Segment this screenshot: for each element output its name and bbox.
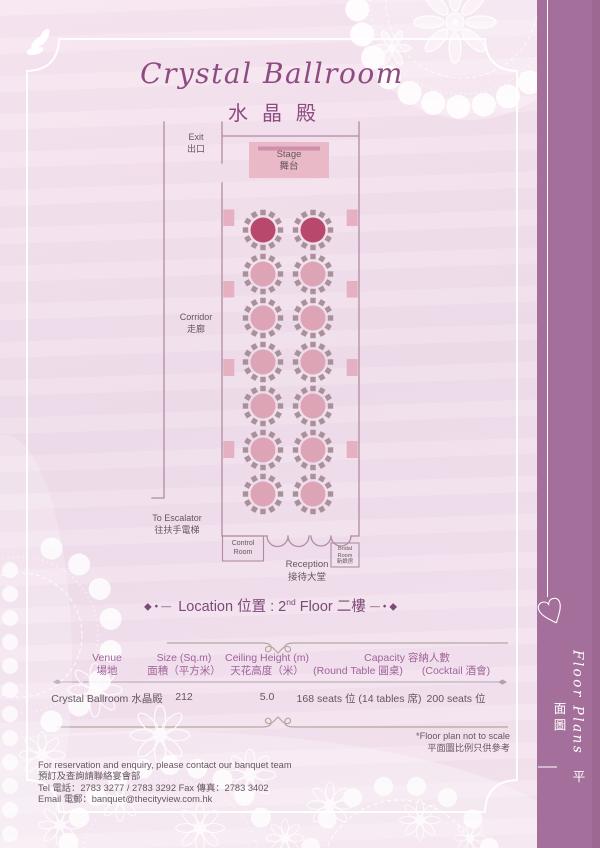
chair-icon — [278, 403, 283, 408]
chair-icon — [310, 298, 315, 303]
door-arcs — [267, 536, 351, 547]
chair-icon — [275, 499, 282, 506]
chair-icon — [325, 367, 332, 374]
chair-icon — [325, 482, 332, 489]
chair-icon — [328, 447, 333, 452]
chair-icon — [293, 271, 298, 276]
chair-icon — [318, 387, 325, 394]
chair-icon — [243, 447, 248, 452]
sidebar-label-en: Floor Plans — [570, 650, 586, 755]
chair-icon — [310, 289, 315, 294]
chair-icon — [275, 262, 282, 269]
location-ornament-left: ◆•— — [144, 602, 174, 613]
chair-icon — [325, 455, 332, 462]
chair-icon — [260, 289, 265, 294]
chair-icon — [328, 315, 333, 320]
corner-petal-icon — [26, 27, 52, 56]
chair-icon — [294, 482, 301, 489]
chair-icon — [301, 255, 308, 262]
chair-icon — [260, 465, 265, 470]
chair-icon — [278, 271, 283, 276]
chair-icon — [318, 418, 325, 425]
chair-icon — [325, 218, 332, 225]
chair-icon — [293, 491, 298, 496]
chair-icon — [275, 218, 282, 225]
chair-icon — [275, 394, 282, 401]
chair-icon — [251, 211, 258, 218]
chair-icon — [275, 350, 282, 357]
chair-icon — [275, 438, 282, 445]
chair-icon — [318, 462, 325, 469]
chair-icon — [294, 350, 301, 357]
chair-icon — [325, 394, 332, 401]
chair-icon — [318, 211, 325, 218]
chair-icon — [318, 475, 325, 482]
chair-icon — [293, 359, 298, 364]
chair-icon — [278, 315, 283, 320]
chair-icon — [318, 299, 325, 306]
chair-icon — [275, 279, 282, 286]
chair-icon — [301, 374, 308, 381]
chair-icon — [251, 475, 258, 482]
round-table — [301, 438, 326, 463]
chair-icon — [301, 418, 308, 425]
stage-label: Stage 舞台 — [250, 149, 328, 173]
chair-icon — [275, 411, 282, 418]
chair-icon — [268, 506, 275, 513]
decor-and-plan-layer — [0, 0, 600, 848]
page-title-chinese: 水晶殿 — [0, 97, 544, 126]
round-table — [251, 306, 276, 331]
round-table — [301, 482, 326, 507]
chair-icon — [318, 242, 325, 249]
chair-icon — [244, 455, 251, 462]
chair-icon — [244, 306, 251, 313]
chair-icon — [301, 475, 308, 482]
chair-icon — [294, 235, 301, 242]
chair-icon — [260, 474, 265, 479]
divider-flourish-bottom — [57, 717, 508, 727]
chair-icon — [251, 418, 258, 425]
chair-icon — [251, 374, 258, 381]
chair-icon — [310, 465, 315, 470]
chair-icon — [251, 462, 258, 469]
corridor-label: Corridor 走廊 — [166, 311, 226, 335]
sidebar-floor-plans-tab: Floor Plans 平面圖 — [537, 648, 600, 788]
chair-icon — [293, 403, 298, 408]
chair-icon — [243, 359, 248, 364]
location-line: ◆•— Location 位置 : 2nd Floor 二樓 —•◆ — [0, 595, 544, 616]
chair-icon — [260, 333, 265, 338]
chair-icon — [260, 342, 265, 347]
chair-icon — [251, 299, 258, 306]
exit-label: Exit 出口 — [166, 131, 226, 155]
chair-icon — [275, 235, 282, 242]
chair-icon — [278, 359, 283, 364]
vip-round-table — [251, 218, 276, 243]
chair-icon — [251, 343, 258, 350]
chair-icon — [268, 475, 275, 482]
chair-icon — [293, 315, 298, 320]
chair-icon — [301, 211, 308, 218]
chair-icon — [244, 323, 251, 330]
chair-icon — [260, 421, 265, 426]
chair-icon — [275, 323, 282, 330]
scale-footnote: *Floor plan not to scale 平面圖比例只供參考 — [320, 731, 510, 754]
chair-icon — [244, 367, 251, 374]
chair-icon — [310, 386, 315, 391]
chair-icon — [268, 330, 275, 337]
chair-icon — [294, 455, 301, 462]
chair-icon — [310, 421, 315, 426]
chair-icon — [294, 438, 301, 445]
round-table — [251, 482, 276, 507]
chair-icon — [260, 254, 265, 259]
chair-icon — [275, 367, 282, 374]
chair-icon — [268, 431, 275, 438]
contact-block: For reservation and enquiry, please cont… — [38, 760, 368, 805]
chair-icon — [310, 333, 315, 338]
chair-icon — [301, 343, 308, 350]
chair-icon — [278, 491, 283, 496]
chair-icon — [268, 462, 275, 469]
chair-icon — [260, 430, 265, 435]
page-title: Crystal Ballroom — [0, 57, 544, 90]
chair-icon — [268, 299, 275, 306]
chair-icon — [243, 315, 248, 320]
chair-icon — [268, 211, 275, 218]
chair-icon — [260, 210, 265, 215]
chair-icon — [275, 306, 282, 313]
chair-icon — [328, 491, 333, 496]
chair-icon — [251, 286, 258, 293]
chair-icon — [268, 286, 275, 293]
chair-icon — [328, 403, 333, 408]
chair-icon — [293, 227, 298, 232]
chair-icon — [268, 418, 275, 425]
chair-icon — [251, 431, 258, 438]
chair-icon — [251, 506, 258, 513]
contact-email: Email 電郵：banquet@thecityview.com.hk — [38, 794, 368, 805]
round-table — [301, 350, 326, 375]
chair-icon — [268, 387, 275, 394]
round-table — [251, 262, 276, 287]
page-canvas: Crystal Ballroom 水晶殿 Exit 出口 Stage 舞台 Co… — [0, 0, 600, 848]
chair-icon — [318, 431, 325, 438]
round-table — [251, 350, 276, 375]
chair-icon — [294, 367, 301, 374]
chair-icon — [268, 343, 275, 350]
chair-icon — [301, 299, 308, 306]
chair-icon — [301, 462, 308, 469]
table-header-separator — [53, 679, 507, 684]
chair-icon — [318, 506, 325, 513]
contact-line-zh: 預訂及查詢請聯絡宴會部 — [38, 771, 368, 782]
round-table — [301, 262, 326, 287]
banquet-tables — [243, 210, 333, 514]
chair-icon — [318, 255, 325, 262]
chair-icon — [278, 227, 283, 232]
chair-icon — [325, 235, 332, 242]
contact-phone: Tel 電話：2783 3277 / 2783 3292 Fax 傳真：2783… — [38, 783, 368, 794]
chair-icon — [294, 218, 301, 225]
chair-icon — [325, 323, 332, 330]
chair-icon — [301, 330, 308, 337]
location-ornament-right: —•◆ — [370, 602, 400, 613]
chair-icon — [328, 359, 333, 364]
chair-icon — [325, 279, 332, 286]
chair-icon — [294, 394, 301, 401]
chair-icon — [318, 374, 325, 381]
chair-icon — [243, 403, 248, 408]
chair-icon — [244, 394, 251, 401]
chair-icon — [301, 286, 308, 293]
header-capacity-cocktail: (Cocktail 酒會) — [396, 665, 516, 678]
chair-icon — [310, 245, 315, 250]
chair-icon — [260, 298, 265, 303]
chair-icon — [294, 262, 301, 269]
chair-icon — [328, 271, 333, 276]
contact-line-en: For reservation and enquiry, please cont… — [38, 760, 368, 771]
chair-icon — [310, 254, 315, 259]
chair-icon — [251, 387, 258, 394]
chair-icon — [294, 306, 301, 313]
floor-plan — [152, 122, 359, 567]
chair-icon — [310, 509, 315, 514]
wall-pillars — [223, 210, 357, 459]
chair-icon — [243, 491, 248, 496]
chair-icon — [244, 350, 251, 357]
chair-icon — [310, 210, 315, 215]
chair-icon — [251, 242, 258, 249]
chair-icon — [325, 438, 332, 445]
chair-icon — [268, 374, 275, 381]
chair-icon — [301, 506, 308, 513]
chair-icon — [310, 377, 315, 382]
chair-icon — [318, 330, 325, 337]
chair-icon — [268, 242, 275, 249]
chair-icon — [325, 262, 332, 269]
chair-icon — [278, 447, 283, 452]
round-table — [251, 438, 276, 463]
chair-icon — [243, 227, 248, 232]
chair-icon — [310, 474, 315, 479]
chair-icon — [325, 350, 332, 357]
chair-icon — [244, 482, 251, 489]
chair-icon — [260, 386, 265, 391]
header-capacity: Capacity 容納人數 — [347, 652, 467, 665]
chair-icon — [294, 411, 301, 418]
chair-icon — [251, 255, 258, 262]
chair-icon — [244, 279, 251, 286]
chair-icon — [293, 447, 298, 452]
chair-icon — [243, 271, 248, 276]
chair-icon — [244, 262, 251, 269]
chair-icon — [251, 330, 258, 337]
control-room-label: Control Room — [223, 540, 263, 557]
chair-icon — [244, 411, 251, 418]
chair-icon — [260, 377, 265, 382]
vip-round-table — [301, 218, 326, 243]
chair-icon — [318, 286, 325, 293]
chair-icon — [268, 255, 275, 262]
chair-icon — [325, 499, 332, 506]
chair-icon — [301, 387, 308, 394]
chair-icon — [318, 343, 325, 350]
chair-icon — [294, 279, 301, 286]
round-table — [251, 394, 276, 419]
cell-cocktail: 200 seats 位 — [391, 691, 521, 706]
chair-icon — [294, 499, 301, 506]
chair-icon — [244, 499, 251, 506]
chair-icon — [260, 509, 265, 514]
chair-icon — [310, 430, 315, 435]
chair-icon — [328, 227, 333, 232]
chair-icon — [294, 323, 301, 330]
reception-label: Reception 接待大堂 — [267, 558, 347, 584]
round-table — [301, 306, 326, 331]
chair-icon — [275, 482, 282, 489]
escalator-label: To Escalator 往扶手電梯 — [137, 512, 217, 536]
chair-icon — [325, 306, 332, 313]
chair-icon — [275, 455, 282, 462]
chair-icon — [310, 342, 315, 347]
chair-icon — [260, 245, 265, 250]
chair-icon — [244, 438, 251, 445]
round-table — [301, 394, 326, 419]
chair-icon — [325, 411, 332, 418]
chair-icon — [244, 235, 251, 242]
chair-icon — [301, 431, 308, 438]
chair-icon — [244, 218, 251, 225]
chair-icon — [301, 242, 308, 249]
